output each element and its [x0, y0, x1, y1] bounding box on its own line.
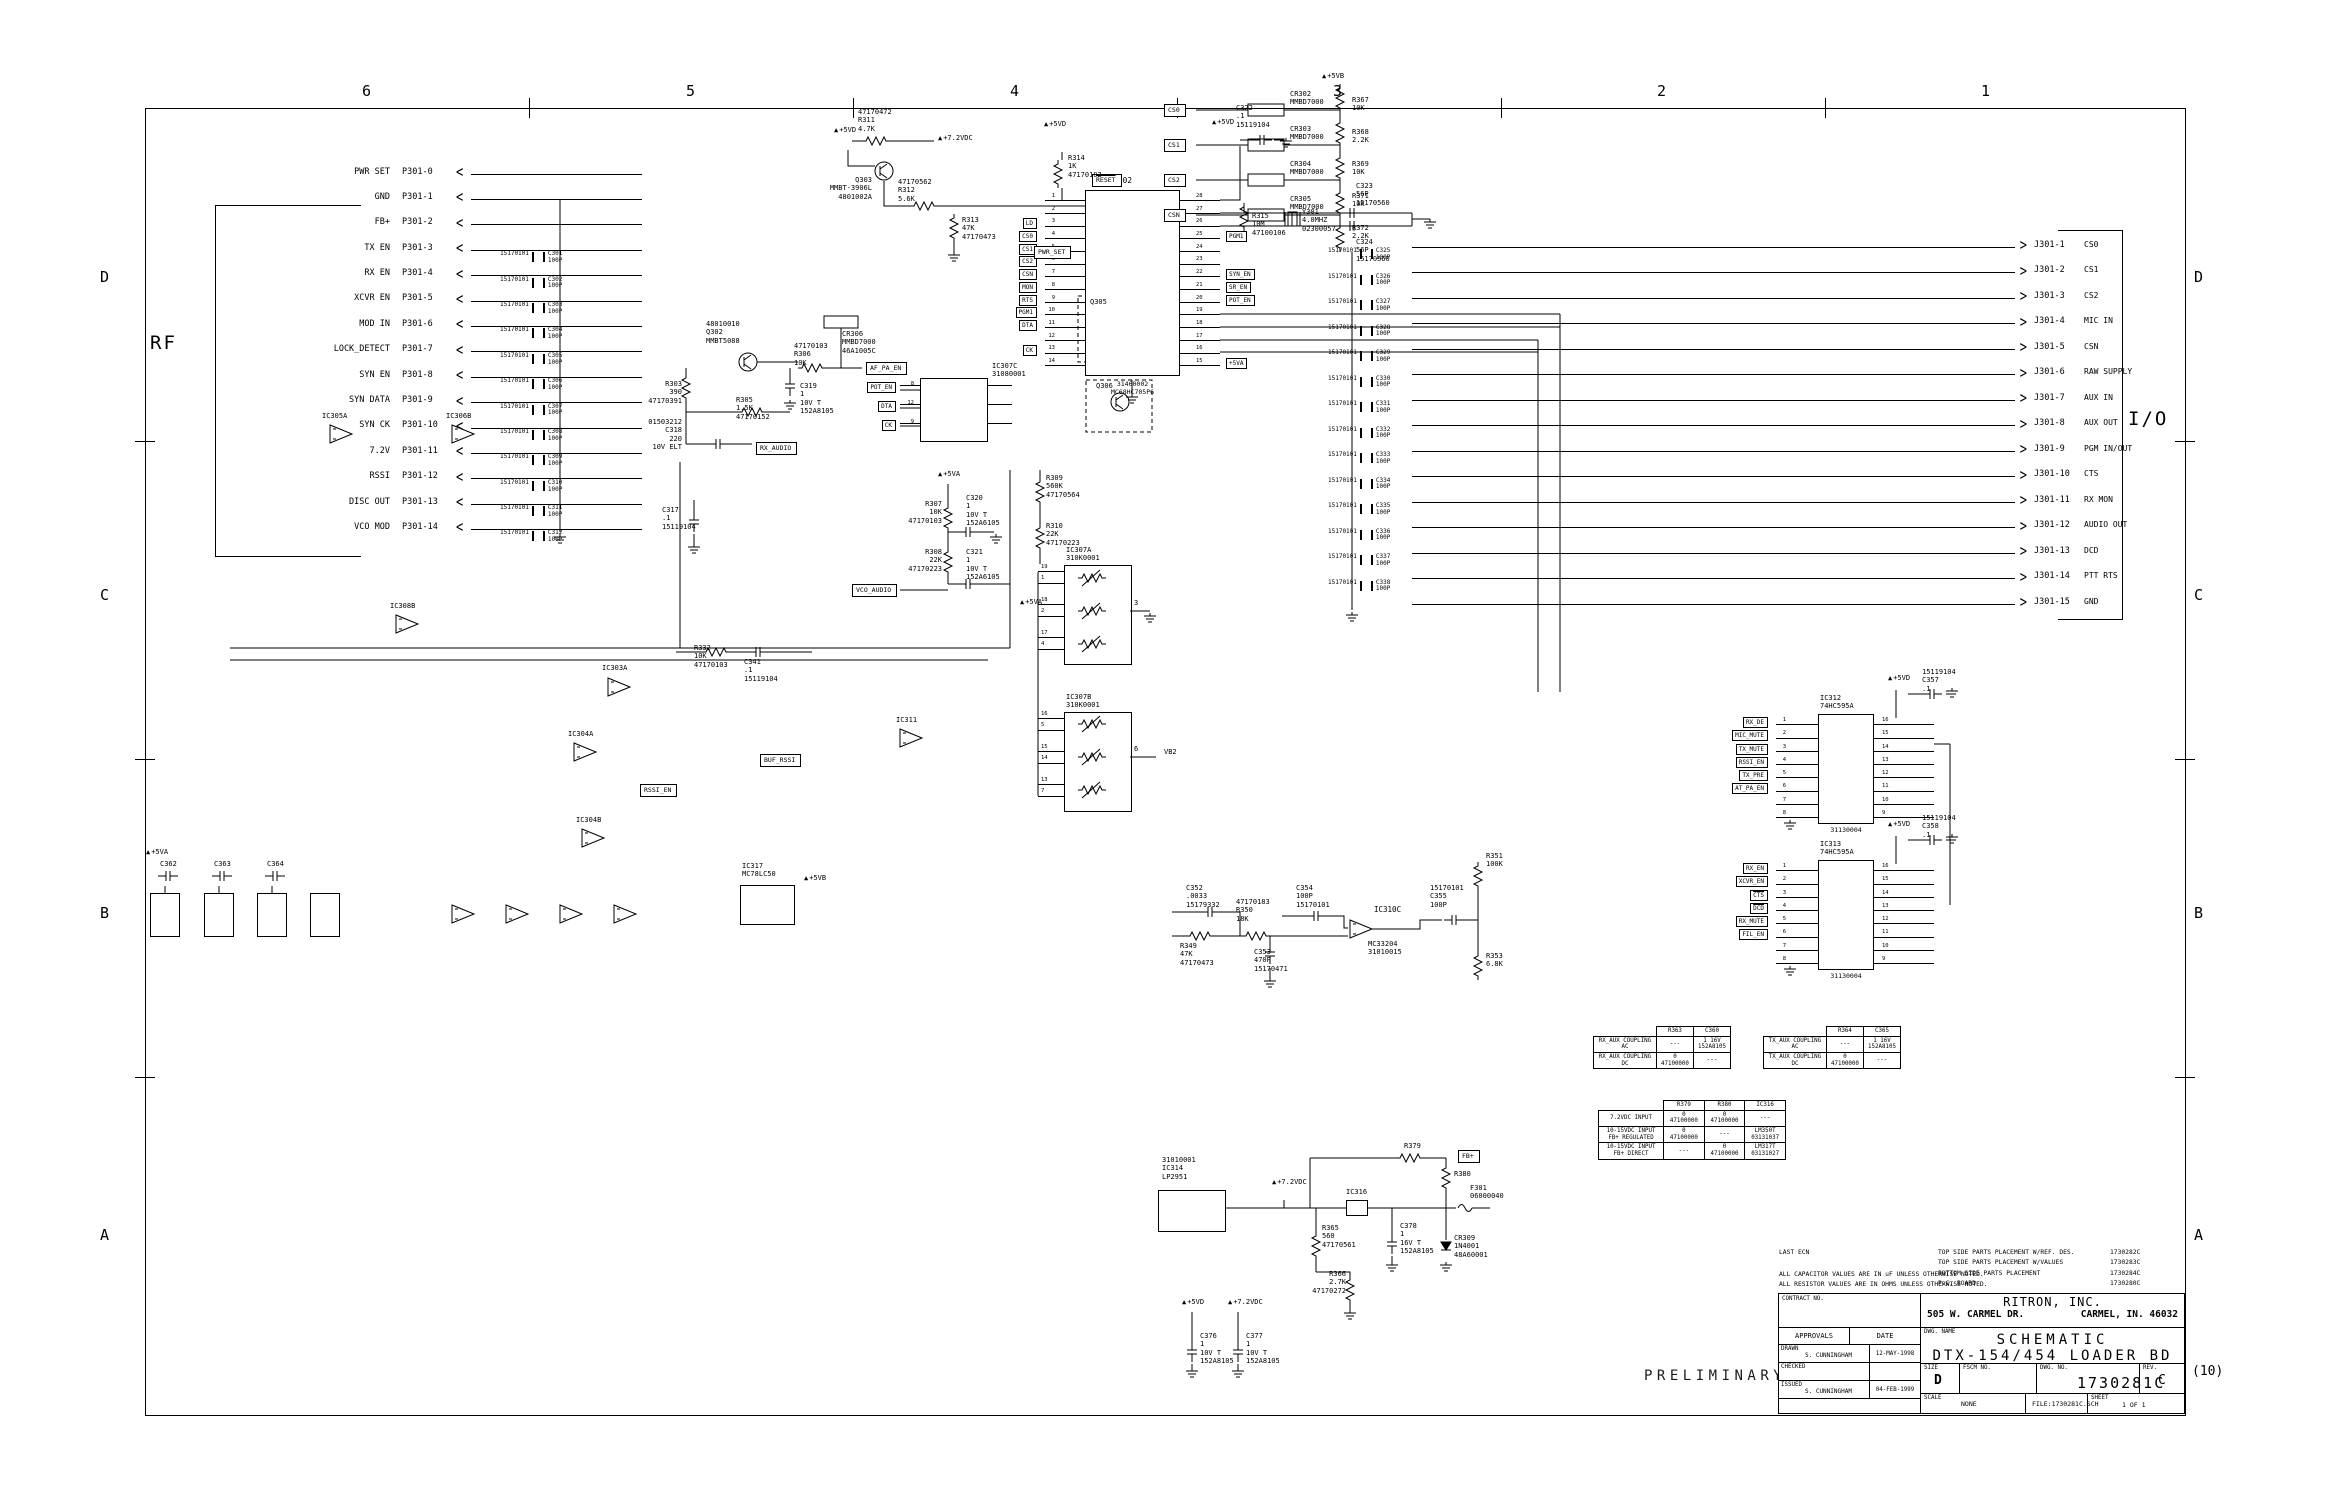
io-signal-label: CS0	[2084, 240, 2098, 249]
part-label: C341 .1 15119104	[744, 658, 778, 683]
pin-number: 16	[1882, 717, 1889, 723]
sr2-right-pins: 16 15 14 13 12 11 10 9	[1874, 864, 1954, 970]
io-signal-label: DCD	[2084, 546, 2098, 555]
part-label: R369 10K	[1352, 160, 1369, 177]
pin-arrow-icon: <	[456, 264, 463, 284]
rf-pin-label: P301-12	[402, 471, 438, 481]
net-flag: RX_MUTE	[1736, 916, 1768, 927]
pin-number: 11	[1882, 783, 1889, 789]
wire	[1038, 718, 1064, 719]
mcu-pin-row: 1	[997, 194, 1085, 207]
reference-label: TOP SIDE PARTS PLACEMENT W/REF. DES.	[1938, 1249, 2110, 1259]
io-pin-row: 15170101 C333 100P > J301-9 PGM IN/OUT	[1320, 438, 2165, 464]
wire	[1045, 213, 1085, 214]
net-flag: PGM1	[1016, 307, 1037, 318]
wire	[1038, 616, 1064, 617]
wire	[1045, 276, 1085, 277]
wire	[1045, 264, 1085, 265]
net-flag: PGM1	[1226, 231, 1247, 242]
wire	[1874, 950, 1934, 951]
wire	[1045, 327, 1085, 328]
pin-number: 13	[1882, 903, 1889, 909]
size-value: D	[1934, 1373, 1942, 1388]
pot-c-right-stubs	[988, 379, 1018, 436]
reference-drawing-row: P.C. BOARD 1730280C	[1938, 1280, 2140, 1290]
net-flag: DTA	[878, 401, 896, 412]
part-label: CR306 MMBD7000 46A1005C	[842, 330, 876, 355]
mcu-pin-row: 4 CS0	[997, 232, 1085, 245]
rf-pin-row: TX EN P301-3 < 15170101 C301 100P	[330, 237, 642, 262]
part-label: 01503212 C318 220 10V ELT	[614, 418, 682, 451]
rf-pin-label: P301-13	[402, 497, 438, 507]
capacitor-icon	[532, 328, 545, 338]
last-ecn-note: LAST ECN	[1779, 1249, 1809, 1256]
pin-arrow-icon: <	[456, 366, 463, 386]
io-pin-label: J301-12	[2034, 520, 2070, 530]
wire	[1776, 724, 1818, 725]
mcu-left-pins: 1 2 3 LD 4 CS0 5 CS1 6 CS2 7 CSN	[997, 194, 1085, 372]
io-pin-row: 15170101 C325 100P > J301-1 CS0	[1320, 234, 2165, 260]
pin-number: 9	[911, 419, 914, 425]
pin-number: 17	[1196, 333, 1203, 339]
rf-signal-label: XCVR EN	[354, 293, 390, 303]
rev-suffix: (10)	[2192, 1364, 2223, 1379]
bypass-cap: 15170101 C312 100P	[500, 530, 562, 544]
wire	[1180, 264, 1220, 265]
mcu-pin-row: 8 MON	[997, 283, 1085, 296]
part-label: R332 10K 47170103	[694, 644, 728, 669]
io-signal-label: AUDIO OUT	[2084, 520, 2127, 529]
mcu-pin-row: 3 LD	[997, 219, 1085, 232]
power-net-label: +7.2VDC	[1228, 1298, 1263, 1306]
rf-signal-label: TX EN	[364, 243, 390, 253]
option-table-tx-aux: R364C365 TX_AUX COUPLING AC---1 16V 152A…	[1763, 1026, 1901, 1069]
wire	[1038, 637, 1064, 638]
pin-number: 26	[1196, 218, 1203, 224]
zone-tick	[2175, 1077, 2195, 1078]
part-label: R353 6.8K	[1486, 952, 1503, 969]
io-signal-label: PGM IN/OUT	[2084, 444, 2132, 453]
net-flag: FIL_EN	[1739, 929, 1768, 940]
rf-signal-label: VCO MOD	[354, 522, 390, 532]
net-flag: CS1	[1164, 139, 1186, 152]
mcu-pin-row: 7 CSN	[997, 270, 1085, 283]
capacitor-icon	[532, 405, 545, 415]
rf-signal-label: MOD IN	[359, 319, 390, 329]
reference-drawings: TOP SIDE PARTS PLACEMENT W/REF. DES. 173…	[1938, 1249, 2140, 1291]
part-label: F301 06000040	[1470, 1184, 1504, 1201]
pin-number: 1	[1783, 863, 1786, 869]
wire	[1776, 923, 1818, 924]
pin-arrow-icon: >	[2020, 440, 2027, 460]
mcu-pin-row: 6 CS2	[997, 257, 1085, 270]
zone-row-label: D	[2194, 268, 2203, 286]
rf-pin-row: VCO MOD P301-14 < 15170101 C312 100P	[330, 516, 642, 541]
pin-number: 9	[1052, 295, 1055, 301]
capacitor-icon	[532, 481, 545, 491]
net-flag: CSN	[1019, 269, 1037, 280]
rf-pin-row: LOCK_DETECT P301-7 < 15170101 C305 100P	[330, 339, 642, 364]
drawn-by: S. CUNNINGHAM	[1805, 1352, 1852, 1359]
pin-number: 10	[1882, 943, 1889, 949]
pot-a-pins: 19 1 18 2 17 4	[1038, 565, 1064, 664]
part-label: R379	[1404, 1142, 1421, 1150]
capacitor-icon	[1360, 326, 1373, 336]
wire	[1776, 738, 1818, 739]
wire	[1180, 238, 1220, 239]
wire	[1038, 649, 1064, 650]
ic-ref: IC305A	[322, 412, 347, 420]
size-label: SIZE	[1924, 1365, 1938, 1371]
ic-pin-row: 4 DCD	[1728, 904, 1818, 917]
wire	[1874, 738, 1934, 739]
issued-label: ISSUED	[1781, 1382, 1802, 1388]
pin-number: 16	[1041, 711, 1048, 717]
net-flag: RSSI_EN	[640, 784, 677, 797]
schematic-sheet: 6 5 4 3 2 1 D C B A D C B A RF PWR SET P…	[0, 0, 2329, 1495]
wire	[1038, 583, 1064, 584]
part-label: R365 560 47170561	[1322, 1224, 1356, 1249]
analog-switch	[257, 893, 287, 937]
regulator-ic317	[740, 885, 795, 925]
ic-ref: IC304A	[568, 730, 593, 738]
pin-number: 8	[911, 381, 914, 387]
pin-number: 3	[1052, 218, 1055, 224]
reference-number: 1730282C	[2110, 1249, 2140, 1259]
ic-pin-row: 5 RX_MUTE	[1728, 917, 1818, 930]
ic-pin-row: 5 TX_PRE	[1728, 771, 1818, 784]
pin-number: 22	[1196, 269, 1203, 275]
pin-number: 9	[1882, 956, 1885, 962]
pot-row: 17 4	[1038, 631, 1064, 664]
power-net-label: +5VD	[1888, 820, 1910, 828]
company-address: 505 W. CARMEL DR.	[1927, 1309, 2024, 1320]
io-pin-row: 15170101 C327 100P > J301-3 CS2	[1320, 285, 2165, 311]
pin-arrow-icon: <	[456, 163, 463, 183]
part-label: 15170101 C355 100P	[1430, 884, 1464, 909]
sr2-left-pins: 1 RX_EN 2 XCVR_EN 3 CTS 4 DCD 5 RX_MUTE …	[1728, 864, 1818, 970]
pin-number: 8	[1052, 282, 1055, 288]
zone-col-label: 2	[1657, 82, 1666, 100]
reference-label: TOP SIDE PARTS PLACEMENT W/VALUES	[1938, 1259, 2110, 1269]
ic-pin-row: 1 RX_DE	[1728, 718, 1818, 731]
wire	[1776, 777, 1818, 778]
net-flag: RTS	[1019, 295, 1037, 306]
pot-row: 15 14	[1038, 745, 1064, 778]
pin-number: 11	[1048, 320, 1055, 326]
power-net-label: +5VB	[804, 874, 826, 882]
pot-row: 19 1	[1038, 565, 1064, 598]
net-flag: VCO_AUDIO	[852, 584, 897, 597]
capacitor-icon	[532, 430, 545, 440]
io-pin-row: 15170101 C328 100P > J301-4 MIC IN	[1320, 311, 2165, 337]
net-flag: CS0	[1164, 104, 1186, 117]
io-pin-label: J301-11	[2034, 495, 2070, 505]
pot-b-pins: 16 5 15 14 13 7	[1038, 712, 1064, 811]
mcu-pin-row: 12	[997, 334, 1085, 347]
power-net-label: +7.2VDC	[938, 134, 973, 142]
mcu-pin-row: 11 DTA	[997, 321, 1085, 334]
pin-number: 10	[1882, 797, 1889, 803]
part-label: R310 22K 47170223	[1046, 522, 1080, 547]
part-label: R368 2.2K	[1352, 128, 1369, 145]
io-pin-label: J301-2	[2034, 265, 2065, 275]
zone-tick	[135, 1077, 155, 1078]
part-label: C378 1 16V T 152A8105	[1400, 1222, 1434, 1255]
wire	[988, 423, 1012, 424]
zone-tick	[2175, 441, 2195, 442]
pin-number: 17	[1041, 630, 1048, 636]
zone-col-label: 5	[686, 82, 695, 100]
digipot-ic307b	[1064, 712, 1132, 812]
part-label: R351 100K	[1486, 852, 1503, 869]
io-pin-row: 15170101 C326 100P > J301-2 CS1	[1320, 260, 2165, 286]
pin-number: 7	[1052, 269, 1055, 275]
wire	[1776, 884, 1818, 885]
wire	[1180, 340, 1220, 341]
zone-col-label: 6	[362, 82, 371, 100]
rf-pin-row: SYN DATA P301-9 < 15170101 C307 100P	[330, 390, 642, 415]
part-label: 47170103 R306 10K	[794, 342, 828, 367]
net-flag: LD	[1023, 218, 1037, 229]
part-label: R308 22K 47170223	[872, 548, 942, 573]
part-label: CR305 MMBD7000	[1290, 195, 1324, 212]
pin-number: 5	[1783, 916, 1786, 922]
pin-arrow-icon: >	[2020, 338, 2027, 358]
zone-tick	[135, 759, 155, 760]
io-signal-label: MIC IN	[2084, 316, 2113, 325]
ic-pin-row	[988, 417, 1018, 436]
pin-number: 7	[1783, 943, 1786, 949]
pin-number: 8	[1783, 956, 1786, 962]
wire	[1180, 365, 1220, 366]
wire	[1045, 365, 1085, 366]
analog-switch	[204, 893, 234, 937]
part-label: CR304 MMBD7000	[1290, 160, 1324, 177]
part-label: CR309 1N4001 48A60001	[1454, 1234, 1488, 1259]
wire	[1776, 897, 1818, 898]
pin-number: 8	[1783, 810, 1786, 816]
wire	[1412, 451, 2015, 452]
reference-label: P.C. BOARD	[1938, 1280, 2110, 1290]
ic-pin-row: 12	[1874, 771, 1954, 784]
capacitor-icon	[1360, 275, 1373, 285]
ic-pin-row	[988, 379, 1018, 398]
pin-arrow-icon: >	[2020, 542, 2027, 562]
power-net-label: +5VA	[146, 848, 168, 856]
rf-pin-label: P301-6	[402, 319, 433, 329]
io-pin-label: J301-4	[2034, 316, 2065, 326]
fscm-label: FSCM NO.	[1963, 1365, 1991, 1371]
part-label: C377 1 10V T 152A8105	[1246, 1332, 1280, 1365]
wire	[1038, 763, 1064, 764]
ic-pin-row: 16	[1874, 864, 1954, 877]
ic-pin-row: 11	[1874, 930, 1954, 943]
pin-number: 7	[1783, 797, 1786, 803]
pin-arrow-icon: >	[2020, 593, 2027, 613]
wire	[1874, 870, 1934, 871]
capacitor-icon	[532, 303, 545, 313]
pin-number: 27	[1196, 206, 1203, 212]
ic-pin-row: 15	[1874, 877, 1954, 890]
pin-number: 19	[1196, 307, 1203, 313]
title-block: CONTRACT NO. APPROVALS DATE DRAWN S. CUN…	[1778, 1293, 2185, 1414]
power-net-label: +5VD	[1888, 674, 1910, 682]
net-flag: RX_AUDIO	[756, 442, 797, 455]
ic-pin-row: 1 RX_EN	[1728, 864, 1818, 877]
power-net-label: +5VA	[938, 470, 960, 478]
part-label: 31010001 IC314 LP2951	[1162, 1156, 1196, 1181]
pot-a-ref: IC307A 310K0001	[1066, 546, 1100, 563]
pin-arrow-icon: >	[2020, 363, 2027, 383]
ic-pin-row: 7	[1728, 944, 1818, 957]
pin-number: 6	[1134, 745, 1138, 753]
part-label: R366 2.7K 47170272	[1286, 1270, 1346, 1295]
mcu-pin-row: 15 +5VA	[1180, 359, 1290, 372]
ic-pin-row: 10	[1874, 798, 1954, 811]
part-label: R309 560K 47170564	[1046, 474, 1080, 499]
drawing-title-2: DTX-154/454 LOADER BD	[1921, 1348, 2184, 1364]
pin-number: 13	[1041, 777, 1048, 783]
wire	[1874, 751, 1934, 752]
io-signal-label: AUX OUT	[2084, 418, 2118, 427]
pin-number: 25	[1196, 231, 1203, 237]
pin-number: 14	[1041, 755, 1048, 761]
pin-number: 15	[1882, 730, 1889, 736]
wire	[1412, 425, 2015, 426]
wire	[1776, 764, 1818, 765]
pin-number: 15	[1882, 876, 1889, 882]
capacitor-icon	[1360, 479, 1373, 489]
wire	[1180, 289, 1220, 290]
ic-pin-row: 3 TX_MUTE	[1728, 745, 1818, 758]
net-flag: TX_MUTE	[1736, 744, 1768, 755]
ic-ref: IC311	[896, 716, 917, 724]
pin-number: 14	[1048, 358, 1055, 364]
pin-number: 6	[1783, 783, 1786, 789]
pin-number: 3	[1134, 599, 1138, 607]
zone-row-label: B	[2194, 904, 2203, 922]
net-flag: RX_DE	[1743, 717, 1768, 728]
wire	[1412, 553, 2015, 554]
rev-label: REV.	[2143, 1365, 2157, 1371]
part-label: C353 470P 15170471	[1254, 948, 1288, 973]
zone-row-label: A	[100, 1226, 109, 1244]
rf-pin-label: P301-9	[402, 395, 433, 405]
mcu-pin-row: 10 PGM1	[997, 308, 1085, 321]
net-flag: CSN	[1164, 209, 1186, 222]
cap-ref-value: C312 100P	[548, 530, 562, 544]
reference-drawing-row: TOP SIDE PARTS PLACEMENT W/REF. DES. 173…	[1938, 1249, 2140, 1259]
pin-arrow-icon: <	[456, 442, 463, 462]
wire	[1180, 200, 1220, 201]
capacitor-icon	[1360, 377, 1373, 387]
rev-value: C	[2158, 1373, 2166, 1388]
scale-value: NONE	[1961, 1400, 1977, 1408]
rf-signal-label: SYN EN	[359, 370, 390, 380]
reference-number: 1730280C	[2110, 1280, 2140, 1290]
io-signal-label: CS2	[2084, 291, 2098, 300]
rf-signal-label: RX EN	[364, 268, 390, 278]
company-city: CARMEL, IN. 46032	[2081, 1309, 2178, 1320]
wire	[1180, 353, 1220, 354]
checked-date	[1870, 1363, 1920, 1380]
io-pin-label: J301-8	[2034, 418, 2065, 428]
pin-number: 12	[1048, 333, 1055, 339]
part-label: R367 10K	[1352, 96, 1369, 113]
pin-number: 3	[1783, 890, 1786, 896]
wire	[1874, 897, 1934, 898]
wire	[1412, 298, 2015, 299]
net-flag: DTA	[1019, 320, 1037, 331]
io-pin-row: 15170101 C329 100P > J301-5 CSN	[1320, 336, 2165, 362]
ic-pin-row: 13	[1874, 758, 1954, 771]
capacitor-icon	[1360, 428, 1373, 438]
net-flag: FB+	[1458, 1150, 1480, 1163]
mcu-pin-row: 13 CK	[997, 346, 1085, 359]
capacitor-icon	[532, 252, 545, 262]
net-flag: RSSI_EN	[1736, 757, 1768, 768]
company-name: RITRON, INC.	[1921, 1295, 2184, 1309]
io-pin-label: J301-6	[2034, 367, 2065, 377]
analog-switch	[310, 893, 340, 937]
wire	[1874, 764, 1934, 765]
zone-row-label: A	[2194, 1226, 2203, 1244]
pin-number: 19	[1041, 564, 1048, 570]
rf-pin-label: P301-4	[402, 268, 433, 278]
io-pin-row: 15170101 C336 100P > J301-12 AUDIO OUT	[1320, 515, 2165, 541]
io-pin-label: J301-15	[2034, 597, 2070, 607]
wire	[1045, 226, 1085, 227]
rf-signal-label: GND	[375, 192, 390, 202]
net-flag: MON	[1019, 282, 1037, 293]
io-pin-row: 15170101 C330 100P > J301-6 RAW SUPPLY	[1320, 362, 2165, 388]
wire	[1776, 963, 1818, 964]
pin-arrow-icon: >	[2020, 491, 2027, 511]
wire	[1874, 884, 1934, 885]
power-net-label: +5VB	[1322, 72, 1344, 80]
sr2-part-number: 31130004	[1818, 972, 1874, 980]
preliminary-watermark: PRELIMINARY	[1644, 1368, 1786, 1384]
part-label: R307 10K 47170103	[872, 500, 942, 525]
pin-arrow-icon: >	[2020, 516, 2027, 536]
net-flag: SR_EN	[1226, 282, 1251, 293]
rf-pin-row: PWR SET P301-0 <	[330, 161, 642, 186]
ic-ref: IC308B	[390, 602, 415, 610]
part-label: IC317 MC78LC50	[742, 862, 776, 879]
io-signal-label: RAW SUPPLY	[2084, 367, 2132, 376]
pin-arrow-icon: <	[456, 290, 463, 310]
net-flag: SYN_EN	[1226, 269, 1255, 280]
io-signal-label: GND	[2084, 597, 2098, 606]
part-label: R349 47K 47170473	[1180, 942, 1214, 967]
rf-pin-row: GND P301-1 <	[330, 186, 642, 211]
wire	[1045, 340, 1085, 341]
capacitor-icon	[1360, 402, 1373, 412]
rf-pin-row: DISC OUT P301-13 < 15170101 C311 100P	[330, 491, 642, 516]
rf-pin-row: 7.2V P301-11 < 15170101 C309 100P	[330, 440, 642, 465]
wire	[1412, 527, 2015, 528]
regulator-ic314	[1158, 1190, 1226, 1232]
sr1-left-pins: 1 RX_DE 2 MIC_MUTE 3 TX_MUTE 4 RSSI_EN 5…	[1728, 718, 1818, 824]
wire	[1045, 314, 1085, 315]
digipot-ic307a	[1064, 565, 1132, 665]
pin-number: 4	[1783, 757, 1786, 763]
rf-pin-label: P301-14	[402, 522, 438, 532]
pin-arrow-icon: <	[456, 188, 463, 208]
pin-arrow-icon: >	[2020, 287, 2027, 307]
rf-pin-row: XCVR EN P301-5 < 15170101 C303 100P	[330, 288, 642, 313]
